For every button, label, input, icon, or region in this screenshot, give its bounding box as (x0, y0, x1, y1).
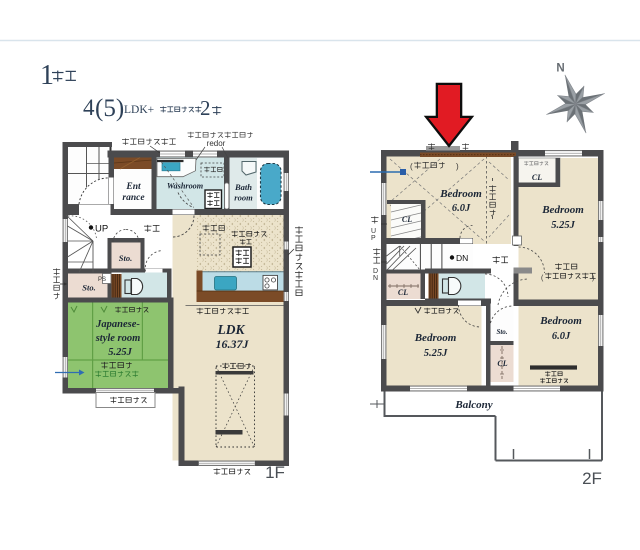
svg-text:5.25J: 5.25J (424, 348, 448, 359)
svg-text:): ) (592, 275, 594, 282)
svg-text:CL: CL (402, 215, 412, 224)
svg-text:redor: redor (207, 139, 226, 148)
svg-text:Bedroom: Bedroom (539, 315, 582, 327)
svg-text:P: P (371, 235, 376, 242)
svg-text:Ent: Ent (125, 182, 141, 192)
svg-text:rance: rance (122, 193, 145, 203)
svg-text:Bedroom: Bedroom (541, 204, 584, 216)
svg-text:Sto.: Sto. (82, 283, 95, 293)
svg-text:room: room (234, 193, 253, 203)
svg-text:style room: style room (95, 333, 141, 344)
svg-text:CL: CL (497, 359, 507, 368)
svg-text:PS: PS (98, 277, 106, 283)
svg-text:CL: CL (398, 288, 408, 297)
svg-text:5.25J: 5.25J (551, 220, 575, 231)
svg-text:LDK: LDK (217, 322, 246, 337)
svg-text:Japanese-: Japanese- (95, 319, 140, 330)
svg-text:16.37J: 16.37J (216, 337, 250, 351)
svg-text:D: D (373, 268, 378, 275)
svg-text:CL: CL (532, 173, 542, 182)
svg-text:2: 2 (200, 96, 211, 120)
svg-text:4: 4 (83, 95, 95, 120)
svg-text:(: ( (410, 162, 413, 171)
svg-text:Washroom: Washroom (167, 182, 203, 191)
svg-text:1: 1 (40, 60, 54, 91)
svg-text:U: U (371, 228, 376, 235)
svg-text:N: N (373, 275, 378, 282)
svg-text:5.25J: 5.25J (108, 347, 132, 358)
svg-text:1F: 1F (265, 463, 285, 482)
svg-text:DN: DN (456, 253, 468, 263)
svg-text:Bedroom: Bedroom (414, 332, 457, 344)
svg-text:Sto.: Sto. (119, 253, 132, 263)
svg-text:N: N (556, 62, 564, 74)
svg-text:Bath: Bath (234, 182, 252, 192)
svg-text:): ) (456, 162, 459, 171)
svg-text:2F: 2F (582, 469, 602, 488)
svg-text:(5): (5) (95, 95, 124, 122)
svg-text:LDK+: LDK+ (124, 104, 154, 116)
svg-text:Balcony: Balcony (454, 399, 492, 411)
svg-text:Sto.: Sto. (496, 328, 507, 336)
svg-text:UP: UP (95, 224, 108, 235)
svg-text:6.0J: 6.0J (452, 203, 471, 214)
svg-text:6.0J: 6.0J (552, 331, 571, 342)
svg-text:Bedroom: Bedroom (439, 188, 482, 200)
